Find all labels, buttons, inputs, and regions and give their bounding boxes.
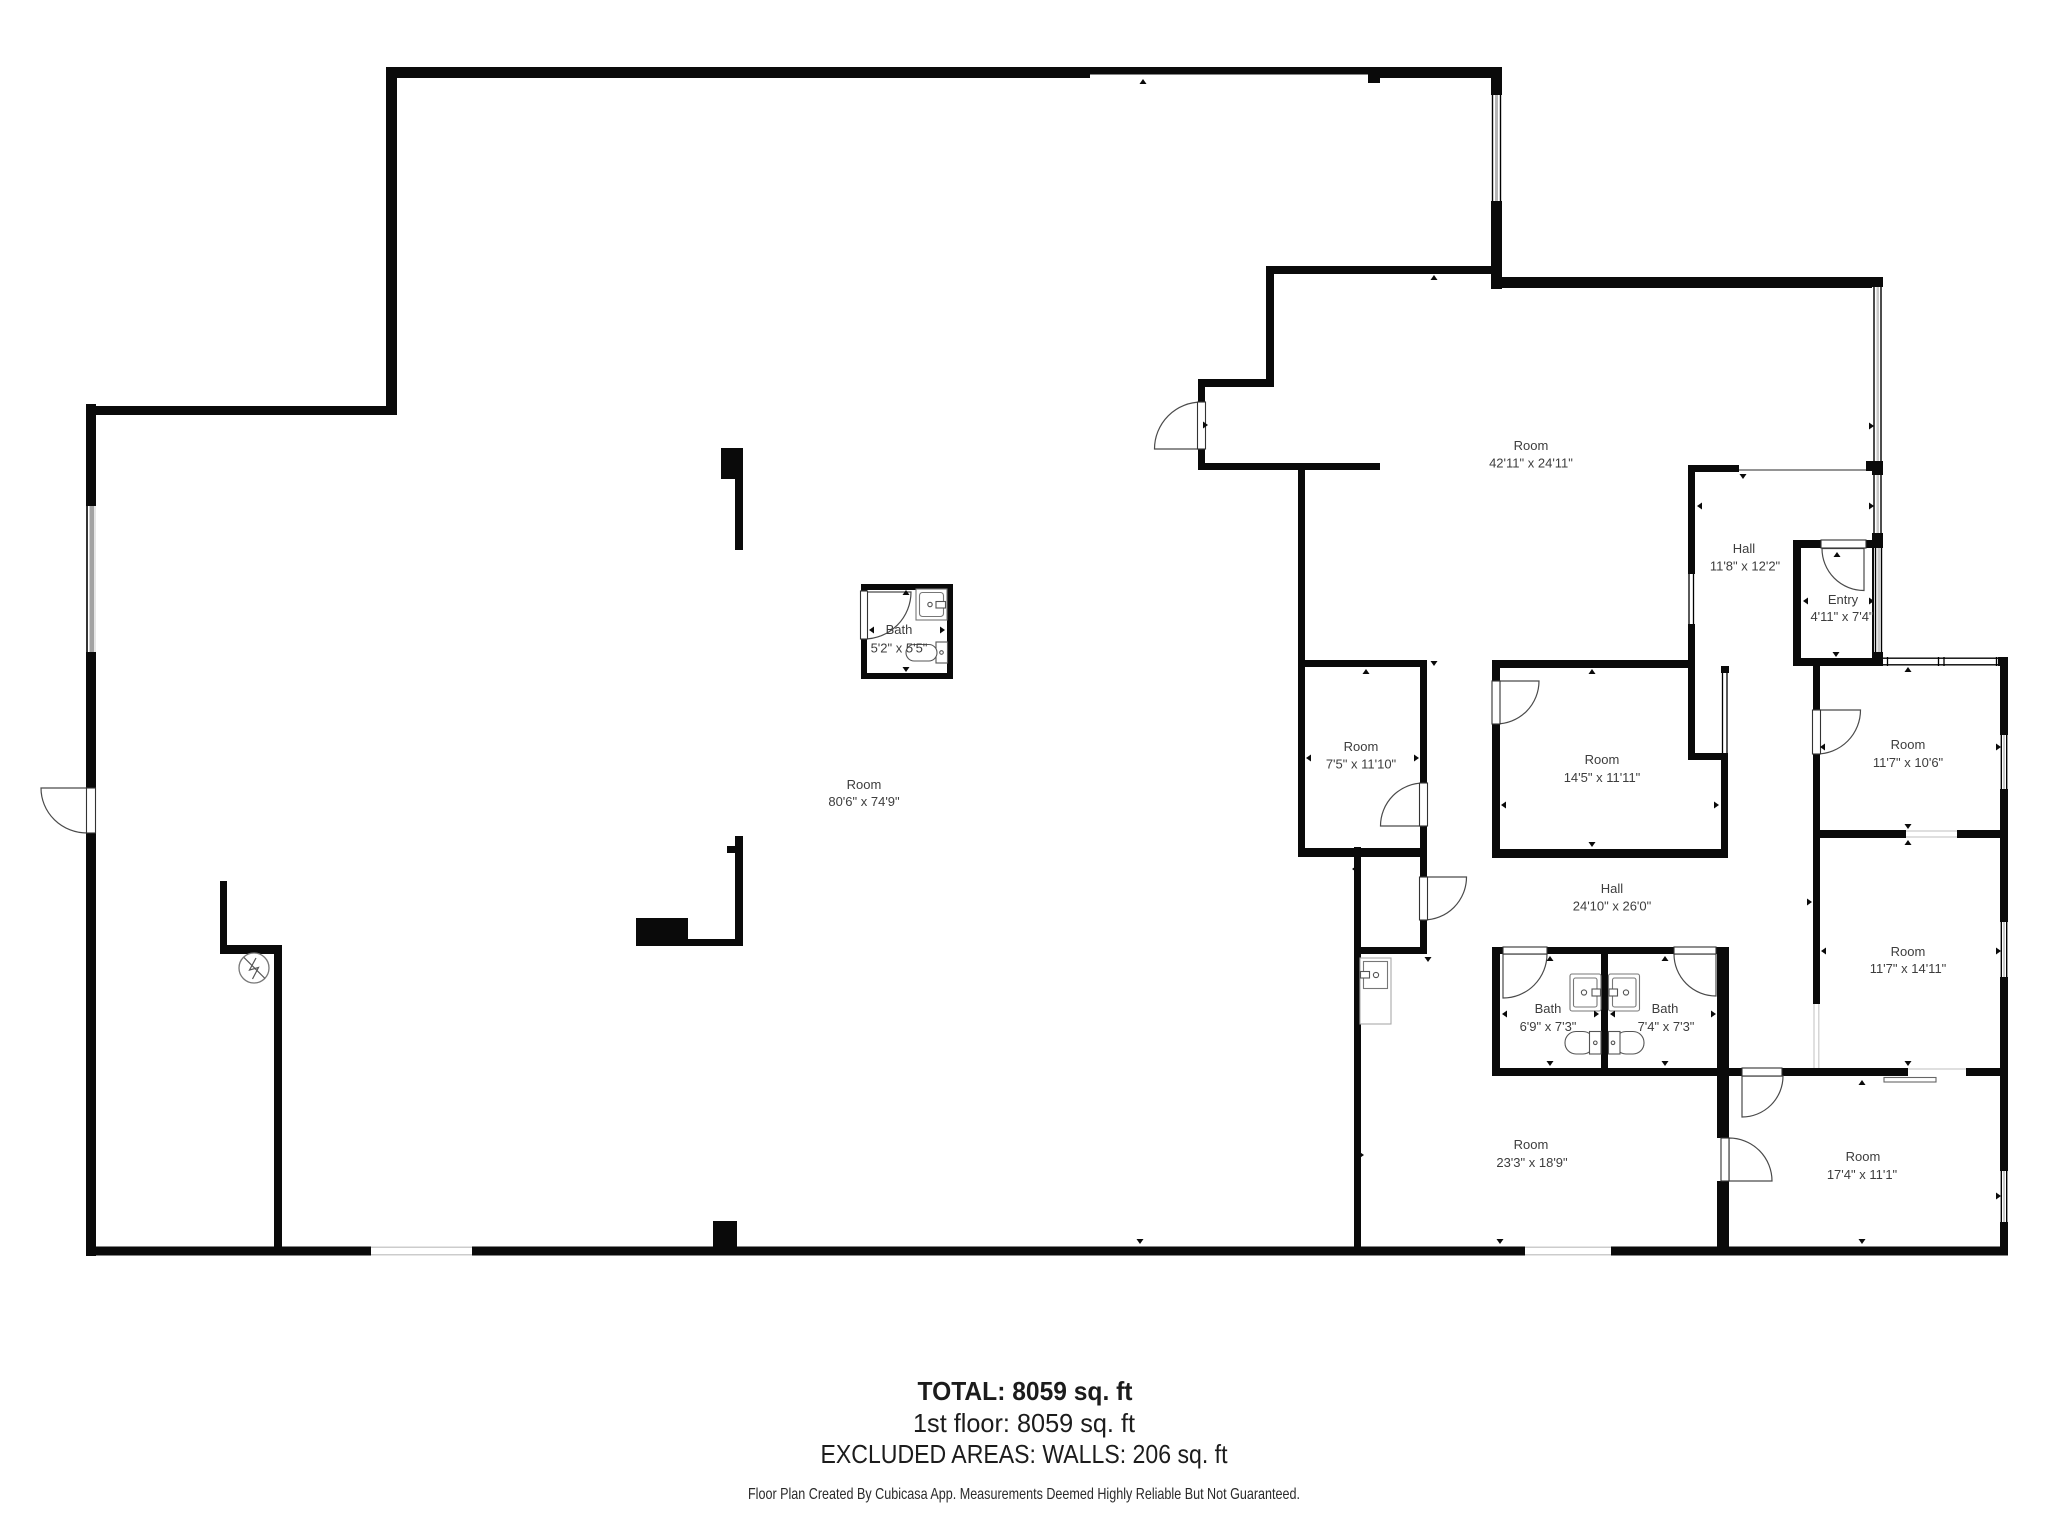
svg-text:TOTAL: 8059 sq. ft: TOTAL: 8059 sq. ft [918, 1376, 1133, 1406]
svg-text:17'4" x 11'1": 17'4" x 11'1" [1827, 1167, 1898, 1182]
svg-text:Room: Room [1344, 739, 1379, 754]
svg-text:11'7" x 10'6": 11'7" x 10'6" [1873, 755, 1944, 770]
svg-text:4'11" x 7'4": 4'11" x 7'4" [1810, 609, 1873, 624]
svg-text:Entry: Entry [1828, 592, 1859, 607]
svg-text:Hall: Hall [1733, 541, 1756, 556]
svg-text:Room: Room [1891, 944, 1926, 959]
svg-text:Bath: Bath [1652, 1001, 1679, 1016]
svg-text:14'5" x 11'11": 14'5" x 11'11" [1564, 770, 1641, 785]
svg-text:42'11" x 24'11": 42'11" x 24'11" [1489, 456, 1573, 471]
svg-text:Room: Room [1846, 1149, 1881, 1164]
svg-text:80'6" x 74'9": 80'6" x 74'9" [828, 794, 900, 809]
svg-text:Hall: Hall [1601, 881, 1624, 896]
svg-text:Bath: Bath [1535, 1001, 1562, 1016]
svg-text:Room: Room [1585, 752, 1620, 767]
svg-text:Floor Plan Created By Cubicasa: Floor Plan Created By Cubicasa App. Meas… [748, 1486, 1300, 1503]
svg-text:5'2" x 5'5": 5'2" x 5'5" [871, 641, 928, 656]
svg-text:1st floor: 8059 sq. ft: 1st floor: 8059 sq. ft [913, 1408, 1136, 1438]
svg-text:24'10" x 26'0": 24'10" x 26'0" [1573, 899, 1652, 914]
svg-text:7'5" x 11'10": 7'5" x 11'10" [1326, 757, 1397, 772]
svg-text:Room: Room [847, 777, 882, 792]
svg-text:Room: Room [1514, 1137, 1549, 1152]
svg-text:EXCLUDED AREAS: WALLS: 206 sq.: EXCLUDED AREAS: WALLS: 206 sq. ft [821, 1439, 1229, 1469]
svg-text:11'8" x 12'2": 11'8" x 12'2" [1710, 559, 1781, 574]
svg-text:Room: Room [1514, 438, 1549, 453]
svg-text:Bath: Bath [886, 622, 913, 637]
svg-text:11'7" x 14'11": 11'7" x 14'11" [1870, 961, 1947, 976]
svg-text:6'9" x 7'3": 6'9" x 7'3" [1520, 1019, 1577, 1034]
svg-text:7'4" x 7'3": 7'4" x 7'3" [1638, 1019, 1695, 1034]
svg-text:Room: Room [1891, 737, 1926, 752]
svg-text:23'3" x 18'9": 23'3" x 18'9" [1496, 1155, 1568, 1170]
